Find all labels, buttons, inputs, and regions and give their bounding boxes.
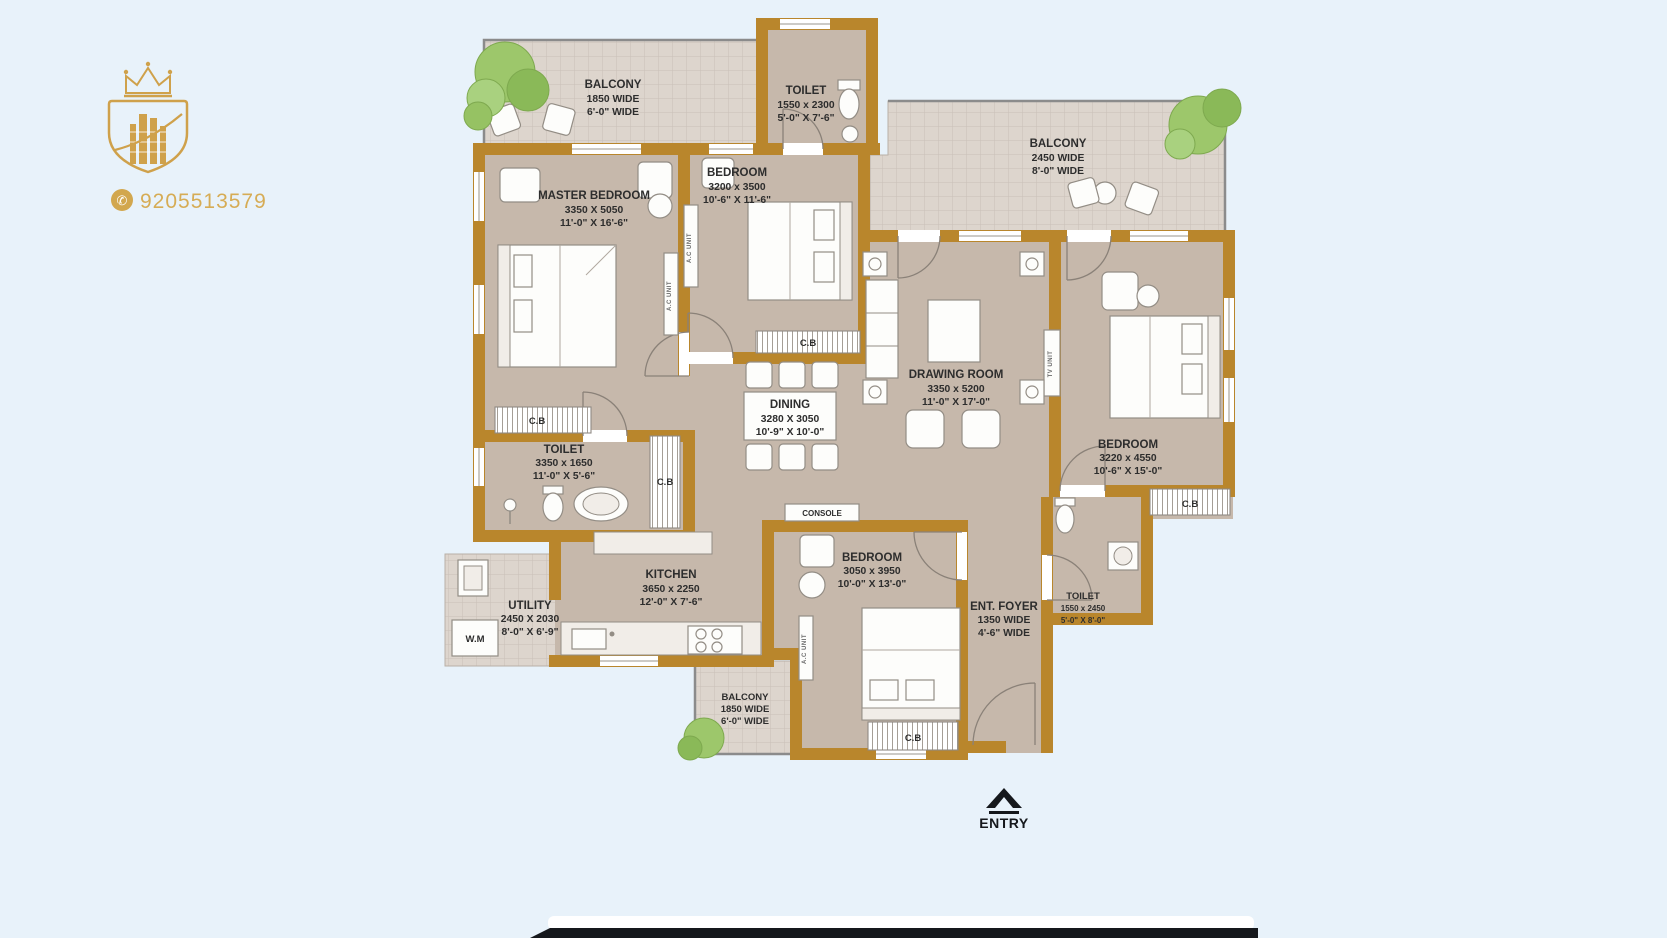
svg-text:KITCHEN: KITCHEN — [645, 569, 696, 581]
svg-text:10'-6" X 11'-6": 10'-6" X 11'-6" — [703, 195, 771, 206]
floor-plan-canvas: BALCONY 1850 WIDE 6'-0" WIDE TOILET 1550… — [0, 0, 1667, 938]
ac-unit-label: A.C UNIT — [802, 634, 808, 664]
room-label-balcony-bottom: BALCONY 1850 WIDE 6'-0" WIDE — [721, 692, 770, 727]
phone-row: ✆ 9205513579 — [111, 189, 267, 213]
ac-unit-label: A.C UNIT — [687, 233, 693, 263]
svg-text:BEDROOM: BEDROOM — [842, 552, 902, 564]
svg-text:BALCONY: BALCONY — [722, 692, 770, 703]
svg-text:3350 X 5050: 3350 X 5050 — [565, 205, 624, 216]
svg-text:11'-0" X 17'-0": 11'-0" X 17'-0" — [922, 397, 990, 408]
svg-text:MASTER BEDROOM: MASTER BEDROOM — [538, 190, 650, 202]
svg-text:TOILET: TOILET — [544, 444, 585, 456]
svg-text:8'-0" WIDE: 8'-0" WIDE — [1032, 166, 1084, 177]
svg-text:11'-0" X 16'-6": 11'-0" X 16'-6" — [560, 218, 628, 229]
entry-label: ENTRY — [979, 815, 1029, 831]
svg-text:BEDROOM: BEDROOM — [707, 167, 767, 179]
svg-text:1350 WIDE: 1350 WIDE — [978, 615, 1031, 626]
room-label-bedroom-top: BEDROOM 3200 x 3500 10'-6" X 11'-6" — [703, 167, 771, 206]
phone-number: 9205513579 — [140, 190, 267, 213]
brand-logo: ✆ 9205513579 — [109, 62, 267, 213]
svg-text:1850 WIDE: 1850 WIDE — [721, 704, 770, 715]
shield-building-icon — [109, 101, 187, 172]
svg-text:1550 x 2300: 1550 x 2300 — [777, 100, 835, 111]
svg-text:3220 x 4550: 3220 x 4550 — [1099, 453, 1157, 464]
svg-text:6'-0" WIDE: 6'-0" WIDE — [721, 716, 769, 727]
svg-text:1550 x 2450: 1550 x 2450 — [1061, 604, 1106, 613]
svg-text:8'-0" X 6'-9": 8'-0" X 6'-9" — [501, 627, 558, 638]
cupboard-label: C.B — [529, 416, 546, 427]
svg-text:3050 x 3950: 3050 x 3950 — [843, 566, 901, 577]
svg-text:BALCONY: BALCONY — [585, 79, 642, 91]
crown-icon — [124, 62, 172, 96]
svg-text:6'-0" WIDE: 6'-0" WIDE — [587, 107, 639, 118]
svg-text:3650 x 2250: 3650 x 2250 — [642, 584, 700, 595]
svg-text:3200 x 3500: 3200 x 3500 — [708, 182, 766, 193]
svg-text:TOILET: TOILET — [786, 85, 827, 97]
room-label-utility: UTILITY 2450 X 2030 8'-0" X 6'-9" — [501, 600, 560, 638]
room-label-kitchen: KITCHEN 3650 x 2250 12'-0" X 7'-6" — [640, 569, 703, 608]
svg-text:TOILET: TOILET — [1066, 591, 1100, 602]
svg-text:11'-0" X 5'-6": 11'-0" X 5'-6" — [533, 471, 595, 482]
svg-text:DINING: DINING — [770, 399, 810, 411]
svg-text:DRAWING ROOM: DRAWING ROOM — [909, 369, 1004, 381]
cupboard-label: C.B — [905, 733, 922, 744]
svg-text:UTILITY: UTILITY — [508, 600, 552, 612]
svg-text:5'-0" X 7'-6": 5'-0" X 7'-6" — [777, 113, 834, 124]
washing-machine-label: W.M — [466, 634, 485, 645]
console-label: CONSOLE — [802, 509, 842, 518]
svg-text:3280 X 3050: 3280 X 3050 — [761, 414, 820, 425]
entry-marker: ENTRY — [979, 788, 1029, 831]
svg-text:10'-6" X 15'-0": 10'-6" X 15'-0" — [1094, 466, 1163, 477]
tree-icon-bottom — [678, 718, 724, 760]
room-label-ent-foyer: ENT. FOYER 1350 WIDE 4'-6" WIDE — [970, 601, 1038, 639]
svg-text:BALCONY: BALCONY — [1030, 138, 1087, 150]
svg-text:12'-0" X 7'-6": 12'-0" X 7'-6" — [640, 597, 703, 608]
tree-icon-top-right — [1165, 89, 1241, 159]
svg-text:4'-6" WIDE: 4'-6" WIDE — [978, 628, 1030, 639]
room-label-bedroom-bottom: BEDROOM 3050 x 3950 10'-0" X 13'-0" — [838, 552, 907, 590]
ac-unit-label: A.C UNIT — [667, 281, 673, 311]
svg-text:BEDROOM: BEDROOM — [1098, 439, 1158, 451]
svg-text:10'-0" X 13'-0": 10'-0" X 13'-0" — [838, 579, 907, 590]
screenshot-root: BALCONY 1850 WIDE 6'-0" WIDE TOILET 1550… — [0, 0, 1667, 938]
cupboard-label: C.B — [800, 338, 817, 349]
svg-text:2450 X 2030: 2450 X 2030 — [501, 614, 560, 625]
master-bed-icon — [498, 245, 616, 367]
tv-unit-label: TV UNIT — [1048, 351, 1054, 378]
svg-text:1850 WIDE: 1850 WIDE — [587, 94, 640, 105]
entry-arrow-icon — [986, 788, 1022, 808]
svg-text:2450 WIDE: 2450 WIDE — [1032, 153, 1085, 164]
svg-text:✆: ✆ — [117, 193, 128, 208]
svg-text:3350 x 5200: 3350 x 5200 — [927, 384, 985, 395]
bottom-bar — [530, 916, 1258, 938]
room-label-toilet-bottom: TOILET 1550 x 2450 5'-0" X 8'-0" — [1061, 591, 1106, 625]
room-label-balcony-top-right: BALCONY 2450 WIDE 8'-0" WIDE — [1030, 138, 1087, 177]
cupboard-label: C.B — [1182, 499, 1199, 510]
room-label-toilet-top: TOILET 1550 x 2300 5'-0" X 7'-6" — [777, 85, 835, 124]
svg-text:10'-9" X 10'-0": 10'-9" X 10'-0" — [756, 427, 825, 438]
cupboard-label: C.B — [657, 477, 674, 488]
room-label-bedroom-right: BEDROOM 3220 x 4550 10'-6" X 15'-0" — [1094, 439, 1163, 477]
svg-text:ENT. FOYER: ENT. FOYER — [970, 601, 1038, 613]
room-label-balcony-top-left: BALCONY 1850 WIDE 6'-0" WIDE — [585, 79, 642, 118]
svg-text:5'-0" X 8'-0": 5'-0" X 8'-0" — [1061, 616, 1106, 625]
svg-text:3350 x 1650: 3350 x 1650 — [535, 458, 593, 469]
